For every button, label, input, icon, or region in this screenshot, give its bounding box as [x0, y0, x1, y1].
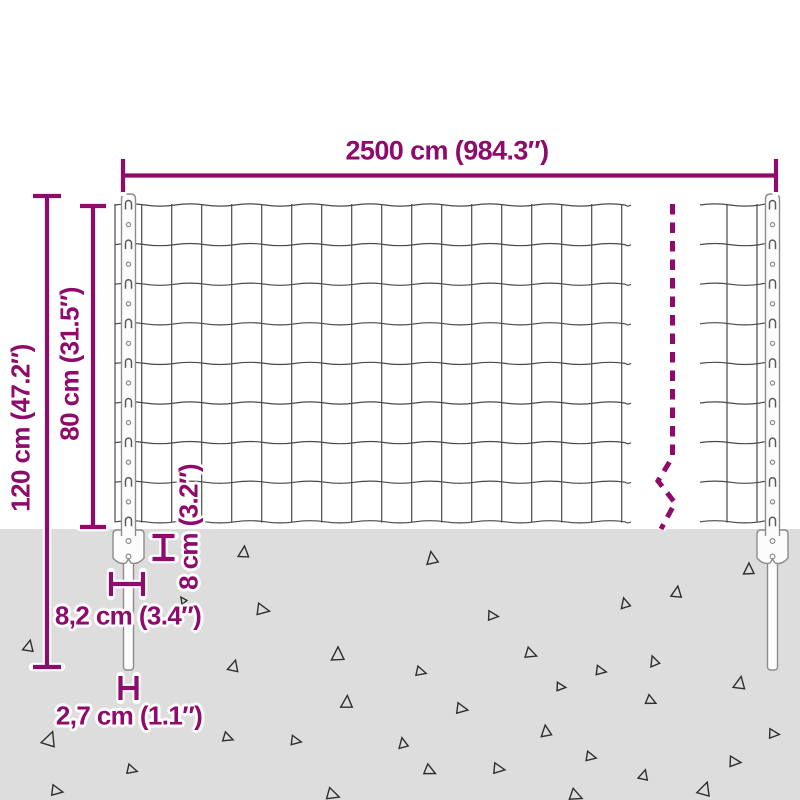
diagram-svg: [0, 0, 800, 800]
anchor-height-dimension-label: 8 cm (3.2″): [174, 464, 205, 590]
post-thickness-dimension-label: 2,7 cm (1.1″): [56, 701, 202, 732]
width-dimension-label: 2500 cm (984.3″): [346, 136, 549, 167]
post-body: [766, 194, 780, 536]
post-ground-spike: [768, 558, 778, 670]
anchor-width-dimension-label: 8,2 cm (3.4″): [55, 601, 201, 632]
fence-dimension-diagram: 2500 cm (984.3″) 120 cm (47.2″) 80 cm (3…: [0, 0, 800, 800]
fence-height-dimension-label: 80 cm (31.5″): [55, 287, 86, 441]
post-body: [122, 194, 136, 536]
ground: [0, 529, 800, 800]
total-height-dimension-label: 120 cm (47.2″): [6, 344, 37, 511]
